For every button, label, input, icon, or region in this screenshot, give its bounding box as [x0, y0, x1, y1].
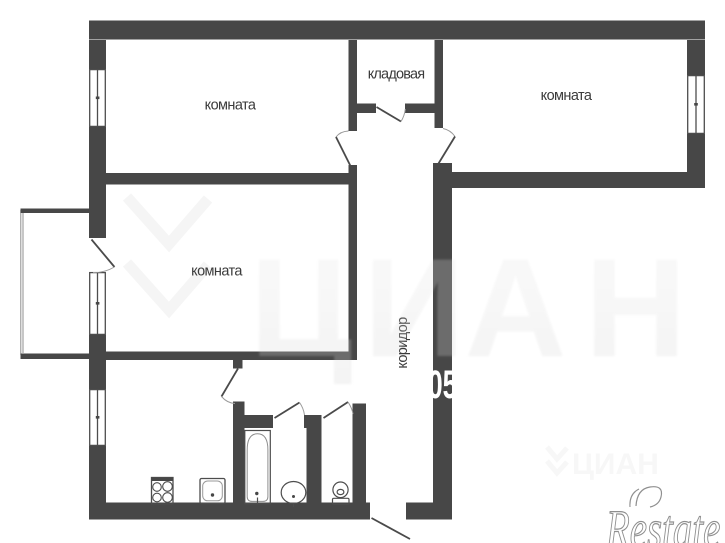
svg-text:комната: комната [541, 88, 593, 104]
svg-text:Ц: Ц [250, 229, 352, 386]
svg-text:Restate: Restate [605, 500, 720, 543]
svg-text:комната: комната [205, 98, 257, 114]
svg-text:кладовая: кладовая [368, 67, 425, 83]
svg-text:комната: комната [191, 264, 243, 280]
svg-text:ЦИАН: ЦИАН [572, 448, 659, 481]
svg-text:А: А [465, 229, 566, 386]
svg-text:05: 05 [428, 363, 457, 408]
svg-text:Н: Н [585, 229, 686, 386]
